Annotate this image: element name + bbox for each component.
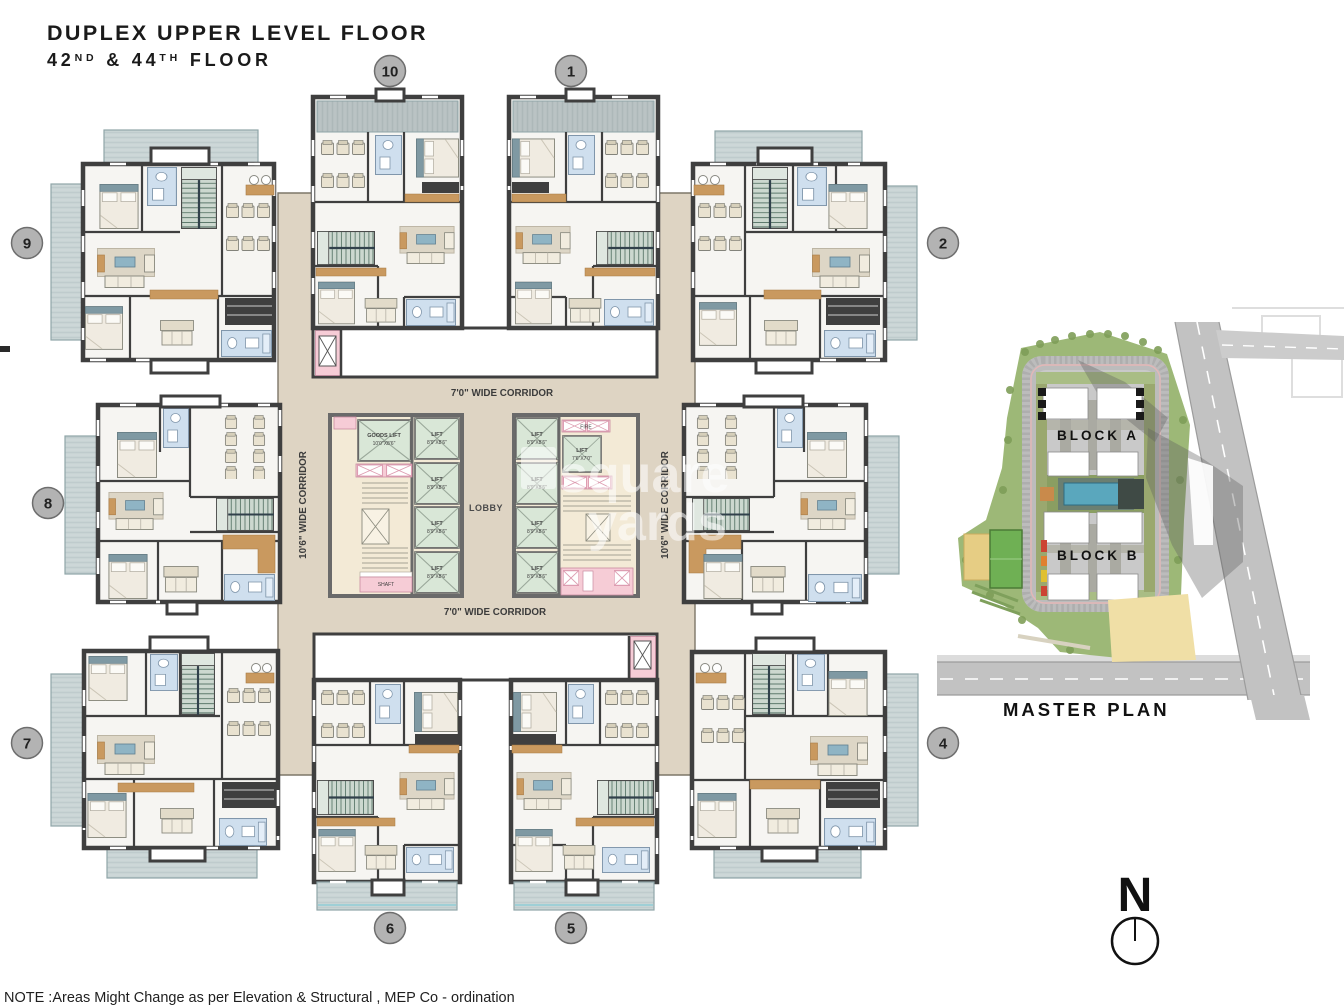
svg-text:LIFT: LIFT xyxy=(531,432,543,438)
svg-text:9: 9 xyxy=(23,236,31,253)
svg-text:LIFT: LIFT xyxy=(431,432,443,438)
svg-text:8: 8 xyxy=(44,496,52,513)
svg-text:LIFT: LIFT xyxy=(531,566,543,572)
svg-text:LOBBY: LOBBY xyxy=(469,503,503,513)
svg-text:7: 7 xyxy=(23,736,31,753)
svg-text:LIFT: LIFT xyxy=(431,477,443,483)
svg-text:7'0" WIDE CORRIDOR: 7'0" WIDE CORRIDOR xyxy=(451,388,553,399)
svg-text:NOTE :Areas Might Change as pe: NOTE :Areas Might Change as per Elevatio… xyxy=(4,990,515,1006)
svg-text:N: N xyxy=(1118,869,1153,922)
svg-text:10'6" WIDE CORRIDOR: 10'6" WIDE CORRIDOR xyxy=(298,451,309,559)
svg-text:7'0" WIDE CORRIDOR: 7'0" WIDE CORRIDOR xyxy=(444,607,546,618)
svg-text:10: 10 xyxy=(382,64,399,81)
svg-text:MASTER PLAN: MASTER PLAN xyxy=(1003,699,1170,720)
svg-text:5: 5 xyxy=(567,921,575,938)
svg-text:6: 6 xyxy=(386,921,394,938)
svg-text:BLOCK A: BLOCK A xyxy=(1057,428,1139,443)
svg-text:4: 4 xyxy=(939,736,948,753)
svg-text:yards: yards xyxy=(588,494,727,552)
svg-text:10'0"X8'6": 10'0"X8'6" xyxy=(373,441,396,447)
svg-text:FIRE: FIRE xyxy=(580,425,592,431)
svg-text:8'9"X8'6": 8'9"X8'6" xyxy=(427,440,447,446)
svg-text:DUPLEX UPPER LEVEL FLOOR: DUPLEX UPPER LEVEL FLOOR xyxy=(47,21,428,45)
svg-text:1: 1 xyxy=(567,64,575,81)
svg-text:8'9"X8'6": 8'9"X8'6" xyxy=(427,574,447,580)
svg-text:8'9"X8'6": 8'9"X8'6" xyxy=(527,529,547,535)
svg-text:2: 2 xyxy=(939,236,947,253)
svg-text:8'9"X8'6": 8'9"X8'6" xyxy=(427,485,447,491)
svg-text:BLOCK B: BLOCK B xyxy=(1057,548,1140,563)
svg-text:GOODS LIFT: GOODS LIFT xyxy=(367,433,401,439)
svg-text:LIFT: LIFT xyxy=(431,521,443,527)
svg-text:8'9"X8'6": 8'9"X8'6" xyxy=(527,574,547,580)
svg-text:LIFT: LIFT xyxy=(531,521,543,527)
svg-text:8'9"X8'6": 8'9"X8'6" xyxy=(427,529,447,535)
svg-text:8'9"X8'6": 8'9"X8'6" xyxy=(527,440,547,446)
svg-text:SHAFT: SHAFT xyxy=(378,582,394,588)
svg-text:LIFT: LIFT xyxy=(431,566,443,572)
